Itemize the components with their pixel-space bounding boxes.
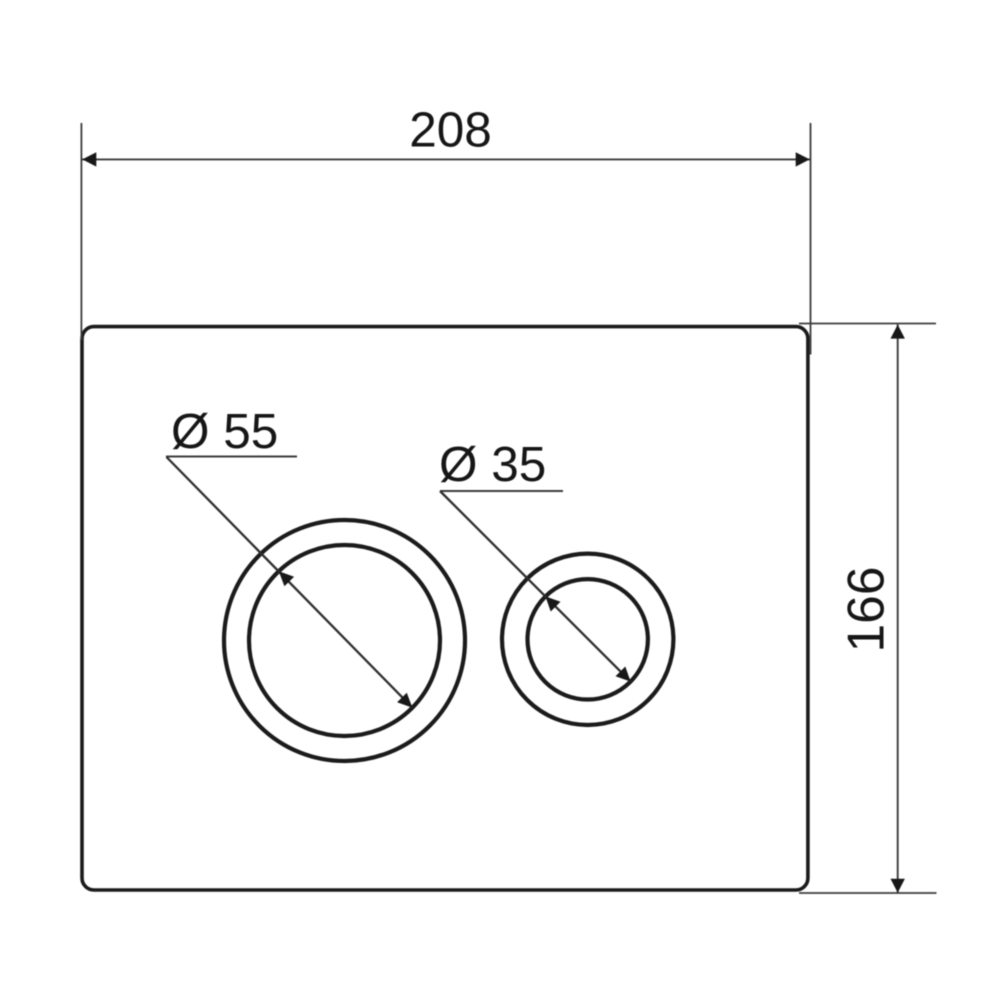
- svg-text:Ø 35: Ø 35: [439, 437, 546, 492]
- svg-text:Ø 55: Ø 55: [171, 404, 278, 459]
- svg-text:208: 208: [409, 103, 492, 158]
- svg-text:166: 166: [837, 567, 895, 653]
